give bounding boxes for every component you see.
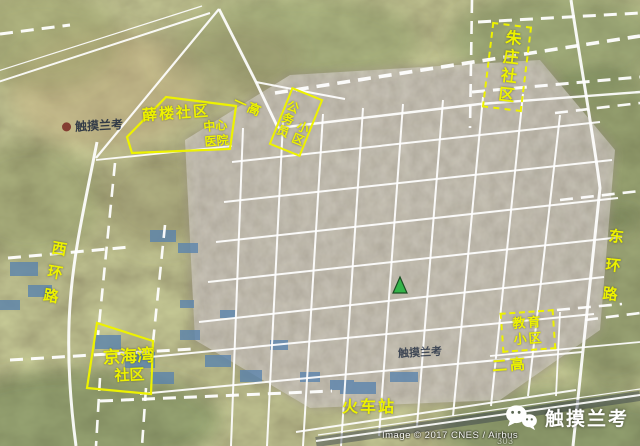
community-label-zhuzhuang: 朱庄社区 xyxy=(490,28,523,106)
community-label-jinghaiwan: 京海湾 社区 xyxy=(97,344,161,387)
tile-watermark-2: 触摸兰考 xyxy=(398,343,443,361)
wechat-watermark: 触摸兰考 xyxy=(504,403,629,431)
jinghaiwan-label-line2: 社区 xyxy=(114,366,145,386)
place-label-train-station: 火车站 xyxy=(342,398,396,417)
jiaoyu-label-line2: 小区 xyxy=(513,330,544,348)
satellite-imagery xyxy=(0,0,640,446)
wechat-account-name: 触摸兰考 xyxy=(545,404,629,431)
attribution-fragment: 303 xyxy=(497,436,514,446)
hospital-label-line2: 医院 xyxy=(204,133,229,150)
jinghaiwan-label-line1: 京海湾 xyxy=(102,345,154,369)
wechat-icon xyxy=(504,403,538,431)
place-label-hospital: 中心 医院 xyxy=(203,118,230,150)
community-box-jiaoyu: 教育 小区 xyxy=(500,309,557,353)
tile-watermark-2-text: 触摸兰考 xyxy=(398,343,443,361)
place-label-second-high: 二高 xyxy=(491,356,528,376)
tile-watermark-1-text: 触摸兰考 xyxy=(75,115,124,134)
satellite-map: 朱庄社区 薛楼社区 中心 医院 一高 公务员 小区 西环路 东环路 教育 小区 … xyxy=(0,0,640,446)
tile-watermark-1: 触摸兰考 xyxy=(62,115,124,135)
watermark-logo-dot-icon xyxy=(62,122,71,131)
